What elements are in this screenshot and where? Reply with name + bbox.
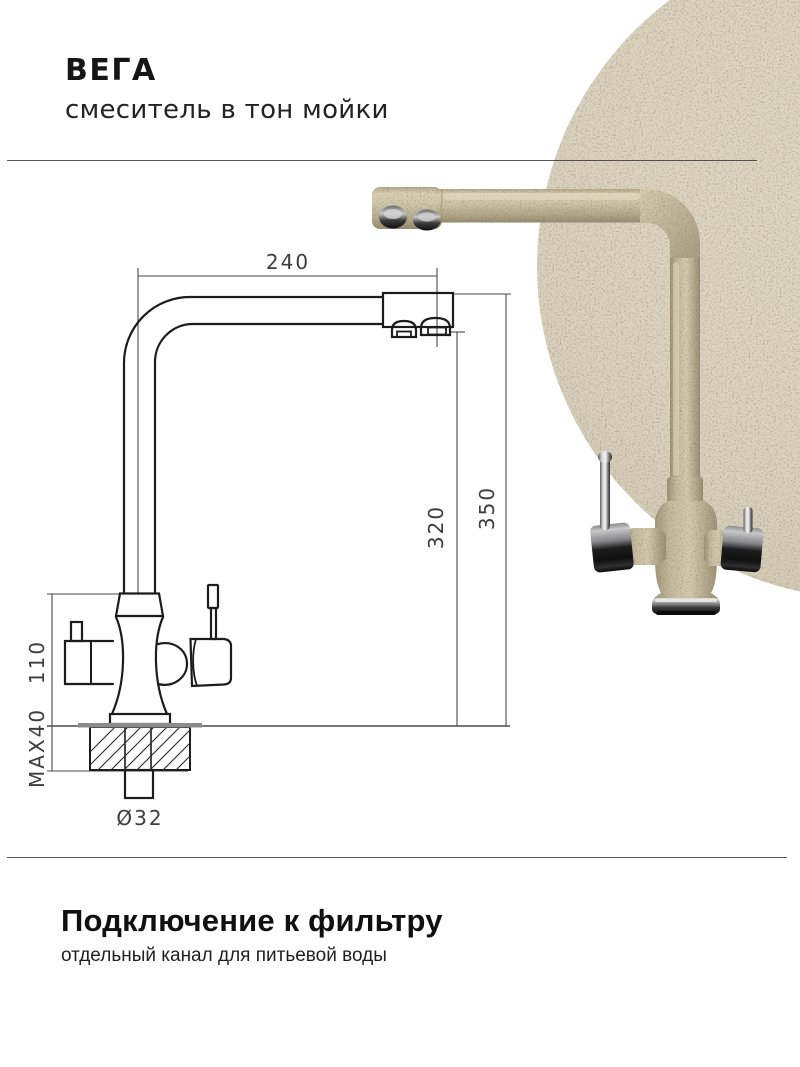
right-handle — [720, 525, 764, 572]
technical-drawing: 240 320 350 110 MAX40 Ø32 — [25, 250, 511, 830]
product-title: ВЕГА — [65, 54, 389, 87]
left-handle — [590, 522, 635, 573]
dim-label-total-height: 350 — [475, 486, 499, 530]
feature-title: Подключение к фильтру — [61, 903, 443, 939]
feature-subtitle: отдельный канал для питьевой воды — [61, 945, 443, 968]
base-ring — [652, 598, 720, 615]
product-card: 240 320 350 110 MAX40 Ø32 ВЕГА смеситель… — [0, 0, 800, 1067]
spout-highlight — [444, 193, 640, 200]
gasket-bar — [78, 723, 202, 728]
right-lever — [744, 507, 753, 533]
dim-label-body-height: 110 — [25, 640, 49, 684]
dim-label-counter-max: MAX40 — [25, 708, 49, 788]
left-lever — [600, 456, 610, 530]
dim-label-spout-height: 320 — [424, 505, 448, 549]
footer-block: Подключение к фильтру отдельный канал дл… — [61, 903, 443, 967]
product-subtitle: смеситель в тон мойки — [65, 96, 389, 126]
dim-label-hole-diameter: Ø32 — [116, 806, 163, 830]
hatch-pattern — [70, 727, 219, 772]
faucet-outline — [65, 293, 453, 798]
header-block: ВЕГА смеситель в тон мойки — [65, 54, 389, 126]
tube-highlight — [673, 262, 679, 476]
dim-label-width: 240 — [266, 250, 310, 274]
cap-seam — [441, 189, 443, 222]
left-lever-cap — [598, 451, 612, 463]
